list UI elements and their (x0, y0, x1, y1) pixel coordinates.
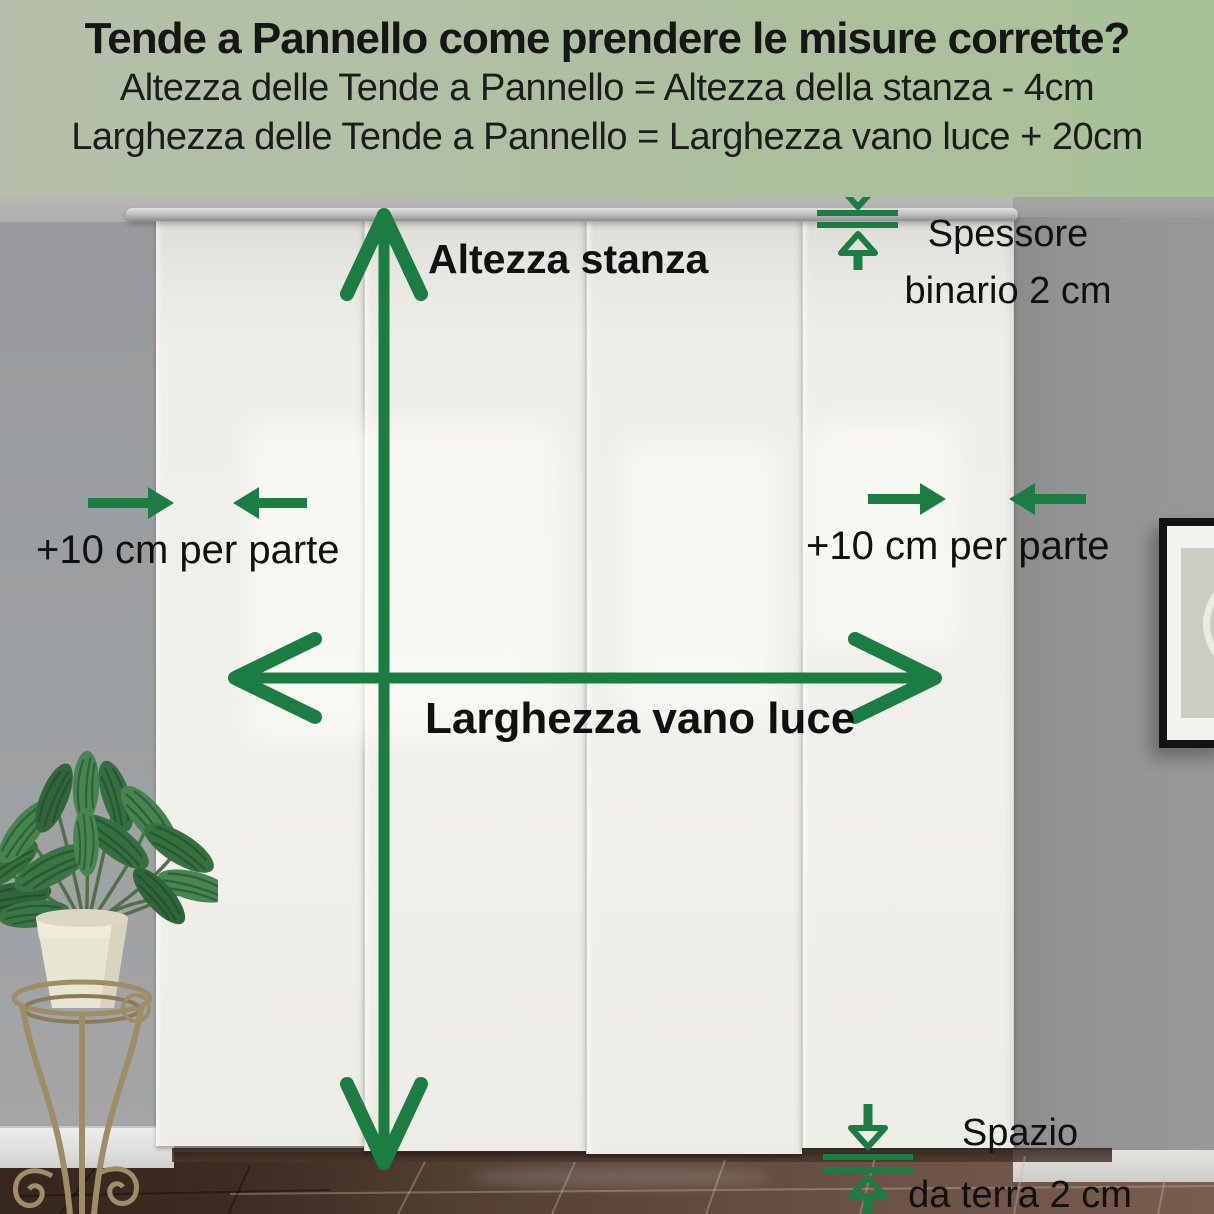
left-margin-label: +10 cm per parte (36, 528, 340, 573)
floor-gap-label: Spazio da terra 2 cm (880, 1102, 1160, 1214)
curtain-light-patch (622, 442, 776, 718)
floor-gap-line2: da terra 2 cm (880, 1164, 1160, 1214)
page-title: Tende a Pannello come prendere le misure… (85, 14, 1130, 64)
curtain-light-patch (248, 424, 558, 740)
curtain-panel (802, 218, 1014, 1148)
artwork-circle (1203, 572, 1214, 676)
frame-mat (1167, 526, 1214, 740)
infographic-canvas: Altezza stanza Larghezza vano luce +10 c… (0, 0, 1214, 1214)
panel-curtain (156, 218, 1014, 1154)
track-thickness-line2: binario 2 cm (880, 263, 1136, 320)
floor-reflection (470, 1166, 770, 1188)
room-height-label: Altezza stanza (428, 236, 708, 283)
picture-frame (1159, 518, 1214, 748)
plant-pot (36, 909, 128, 1008)
track-thickness-label: Spessore binario 2 cm (880, 206, 1136, 320)
width-formula: Larghezza delle Tende a Pannello = Largh… (71, 113, 1143, 162)
right-margin-label: +10 cm per parte (806, 524, 1110, 569)
plant-leaves (0, 750, 218, 931)
frame-artwork (1181, 548, 1214, 718)
header-band: Tende a Pannello come prendere le misure… (0, 0, 1214, 197)
plant-stand (14, 982, 150, 1214)
floor-gap-line1: Spazio (880, 1102, 1160, 1164)
potted-plant (0, 746, 218, 1214)
opening-width-label: Larghezza vano luce (425, 694, 855, 744)
height-formula: Altezza delle Tende a Pannello = Altezza… (120, 64, 1094, 113)
track-thickness-line1: Spessore (880, 206, 1136, 263)
